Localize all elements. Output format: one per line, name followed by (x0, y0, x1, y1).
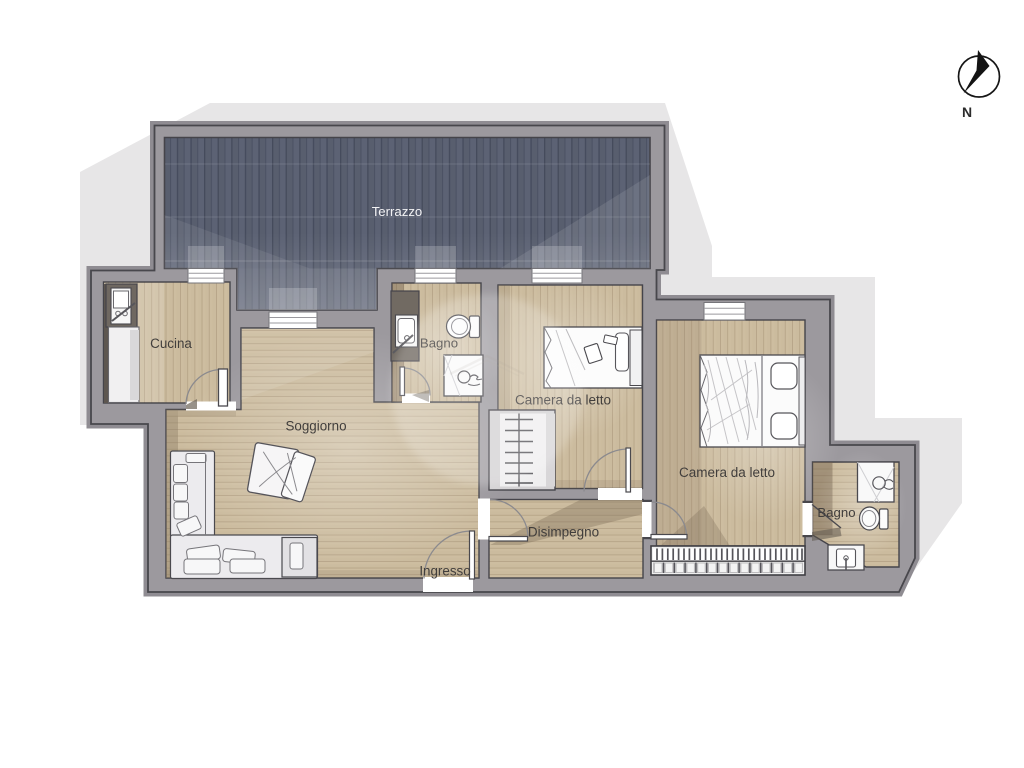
svg-text:Terrazzo: Terrazzo (372, 204, 423, 219)
svg-text:Ingresso: Ingresso (419, 564, 470, 579)
svg-text:Camera da letto: Camera da letto (679, 465, 775, 480)
svg-text:Disimpegno: Disimpegno (528, 525, 599, 540)
svg-text:N: N (962, 104, 972, 120)
svg-text:Cucina: Cucina (150, 336, 192, 351)
svg-text:Soggiorno: Soggiorno (285, 419, 346, 434)
svg-text:Bagno: Bagno (817, 505, 855, 520)
